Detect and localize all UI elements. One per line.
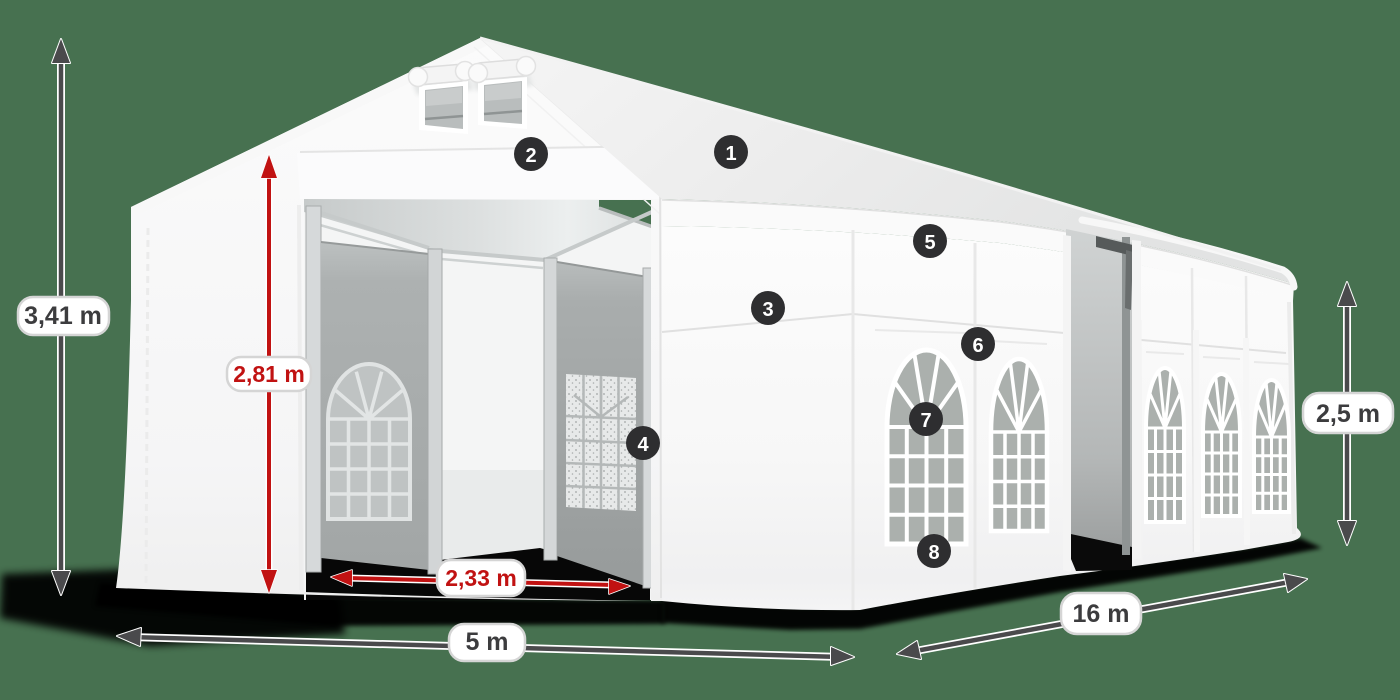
svg-text:2,5 m: 2,5 m xyxy=(1316,400,1380,428)
svg-text:7: 7 xyxy=(920,410,931,432)
svg-text:5 m: 5 m xyxy=(465,628,508,656)
svg-text:2,81 m: 2,81 m xyxy=(233,361,305,387)
svg-text:1: 1 xyxy=(725,143,736,165)
svg-text:4: 4 xyxy=(637,434,649,456)
svg-text:16 m: 16 m xyxy=(1073,600,1130,628)
svg-text:3: 3 xyxy=(762,299,773,321)
svg-text:6: 6 xyxy=(972,335,983,357)
svg-text:2: 2 xyxy=(525,145,536,167)
svg-text:5: 5 xyxy=(924,232,935,254)
svg-text:8: 8 xyxy=(928,542,939,564)
svg-text:2,33 m: 2,33 m xyxy=(445,565,517,591)
svg-text:3,41 m: 3,41 m xyxy=(24,302,102,330)
